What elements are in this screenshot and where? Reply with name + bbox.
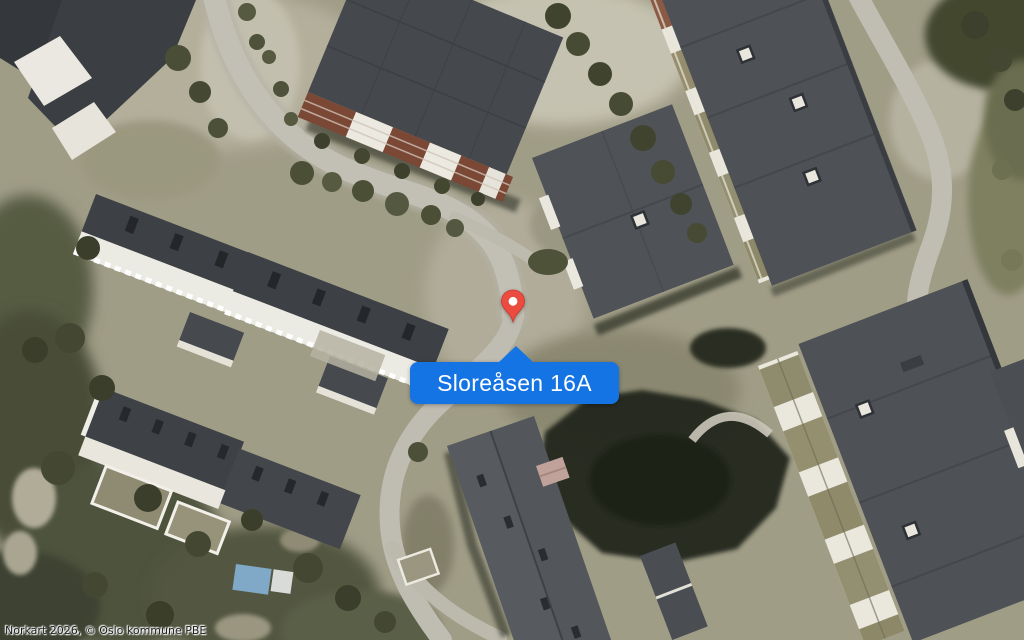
map-attribution: Norkart 2026, © Oslo kommune PBE <box>5 624 206 637</box>
callout-arrow <box>498 346 534 363</box>
location-pin-icon[interactable] <box>500 289 526 323</box>
address-callout[interactable]: Sloreåsen 16A <box>410 362 619 404</box>
map-view[interactable]: Sloreåsen 16A Norkart 2026, © Oslo kommu… <box>0 0 1024 640</box>
address-label: Sloreåsen 16A <box>437 370 592 397</box>
